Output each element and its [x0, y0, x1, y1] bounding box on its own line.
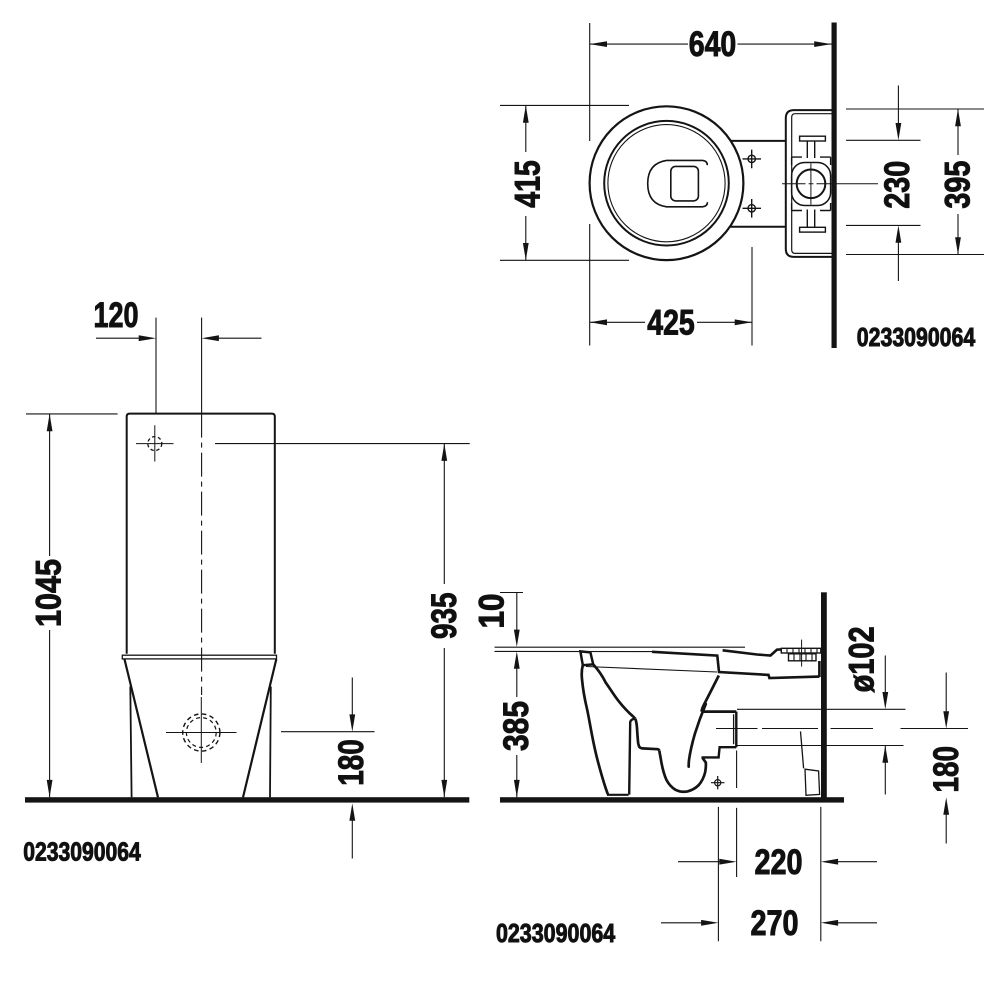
svg-text:ø102: ø102 [843, 626, 882, 692]
svg-text:415: 415 [509, 160, 548, 208]
svg-text:935: 935 [425, 593, 464, 640]
svg-text:220: 220 [755, 843, 803, 882]
svg-text:230: 230 [878, 161, 917, 209]
svg-text:0233090064: 0233090064 [857, 322, 976, 352]
svg-text:180: 180 [332, 739, 371, 786]
svg-text:0233090064: 0233090064 [496, 918, 616, 948]
svg-text:1045: 1045 [30, 559, 69, 627]
svg-text:120: 120 [94, 296, 139, 335]
svg-text:270: 270 [751, 904, 799, 943]
svg-text:640: 640 [689, 25, 737, 64]
svg-text:385: 385 [497, 701, 536, 751]
svg-text:425: 425 [647, 304, 695, 343]
svg-text:180: 180 [927, 746, 966, 793]
svg-text:0233090064: 0233090064 [23, 837, 141, 867]
svg-text:10: 10 [473, 594, 512, 629]
svg-text:395: 395 [939, 161, 978, 209]
